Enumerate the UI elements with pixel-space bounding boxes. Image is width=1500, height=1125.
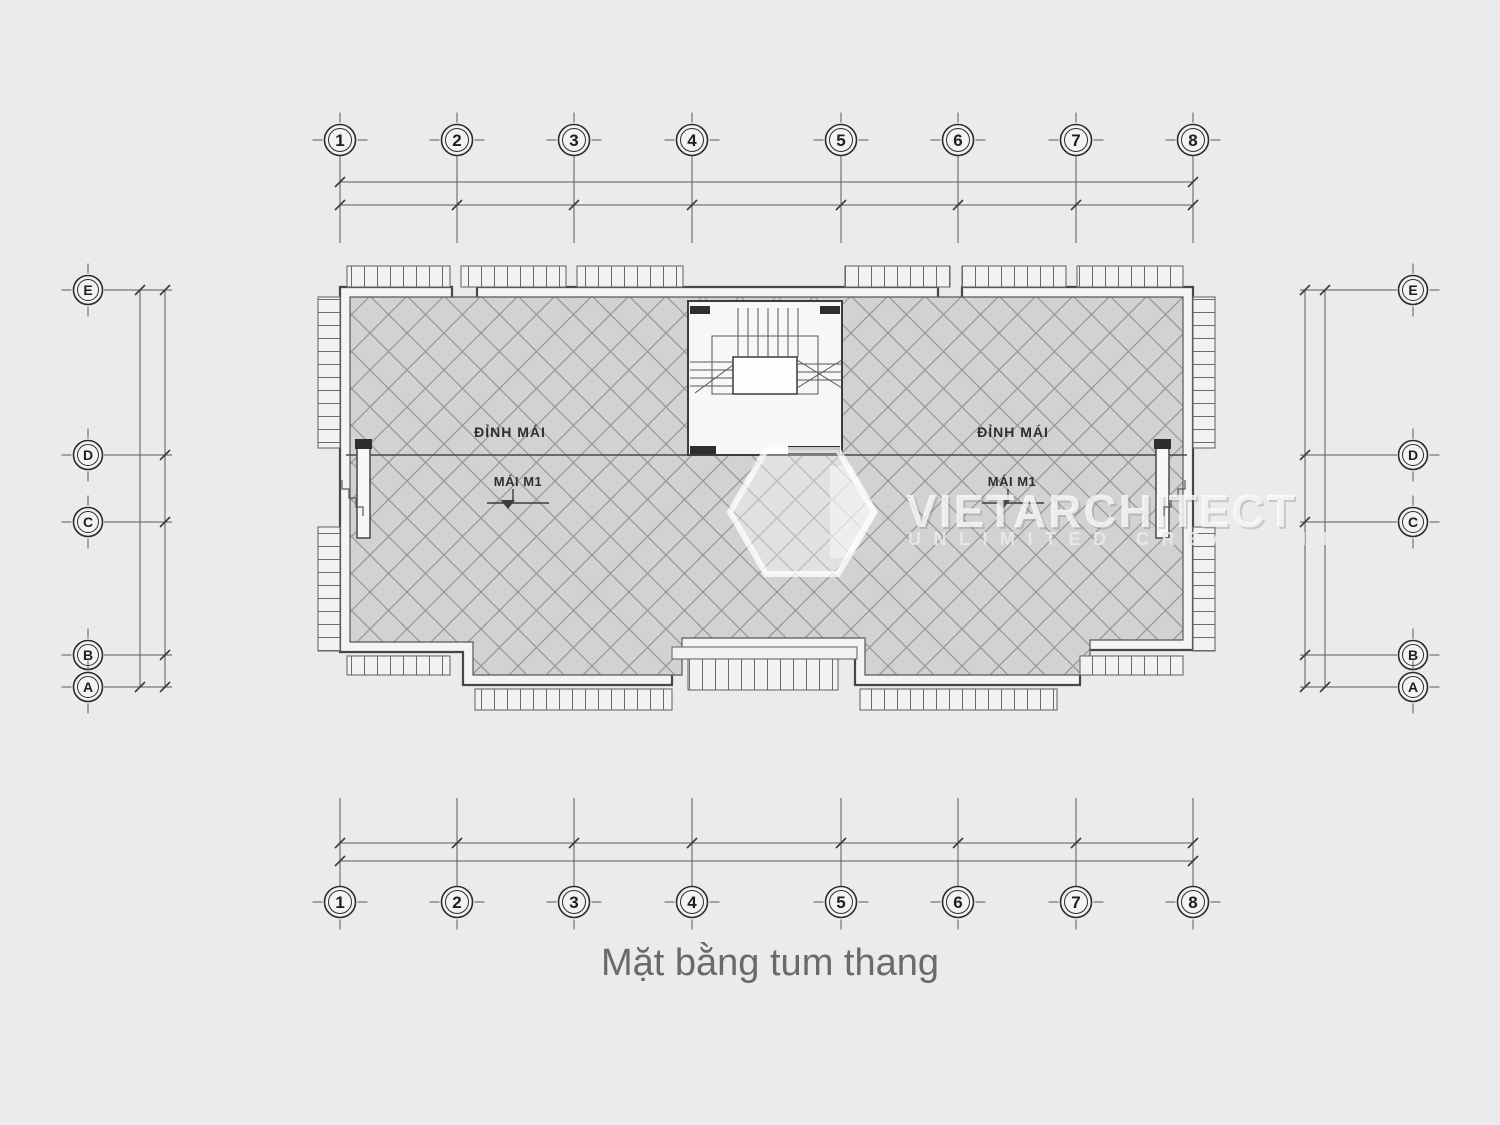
stair-landing (733, 357, 797, 394)
grid-bubble-bottom-3: 3 (547, 875, 602, 930)
grid-bubble-right-0: E (1387, 264, 1440, 317)
grid-bubble-bottom-2-label: 2 (452, 893, 461, 912)
label-roof-right: MÁI M1 (988, 474, 1037, 489)
drawing-title: Mặt bằng tum thang (601, 942, 939, 985)
grid-bubble-top-8: 8 (1166, 113, 1221, 168)
grid-bubble-bottom-5: 5 (814, 875, 869, 930)
grid-bubble-top-4-label: 4 (687, 131, 697, 150)
grid-bubble-top-7-label: 7 (1071, 131, 1080, 150)
grid-bubble-bottom-2: 2 (430, 875, 485, 930)
label-roof-left: MÁI M1 (494, 474, 543, 489)
grid-bubble-top-5: 5 (814, 113, 869, 168)
grid-bubble-right-2: C (1387, 496, 1440, 549)
grid-bubble-right-1: D (1387, 429, 1440, 482)
grid-bubble-left-4-label: A (83, 679, 93, 695)
grid-bubble-right-1-label: D (1408, 447, 1418, 463)
grid-bubble-left-1-label: D (83, 447, 93, 463)
grid-bubble-left-4: A (62, 661, 115, 714)
grid-bubble-top-3: 3 (547, 113, 602, 168)
label-ridge-right: ĐỈNH MÁI (977, 424, 1049, 440)
grid-bubble-bottom-4: 4 (665, 875, 720, 930)
stair-core (688, 301, 842, 455)
grid-bubble-bottom-4-label: 4 (687, 893, 697, 912)
grid-bubble-right-0-label: E (1408, 282, 1417, 298)
grid-bubble-bottom-6-label: 6 (953, 893, 962, 912)
grid-bubble-left-2-label: C (83, 514, 93, 530)
grid-bubble-top-1: 1 (313, 113, 368, 168)
grid-bubble-top-2-label: 2 (452, 131, 461, 150)
grid-bubble-top-4: 4 (665, 113, 720, 168)
grid-bubble-top-5-label: 5 (836, 131, 845, 150)
grid-bubble-bottom-3-label: 3 (569, 893, 578, 912)
grid-bubble-bottom-1-label: 1 (335, 893, 344, 912)
grid-bubble-left-0: E (62, 264, 115, 317)
grid-bubble-right-4-label: A (1408, 679, 1418, 695)
grid-bubble-top-6-label: 6 (953, 131, 962, 150)
grid-bubble-top-8-label: 8 (1188, 131, 1197, 150)
grid-bubble-top-2: 2 (430, 113, 485, 168)
grid-bubble-left-2: C (62, 496, 115, 549)
watermark-tagline: UNLIMITED CREATIVITY (908, 529, 1367, 549)
grid-bubble-bottom-5-label: 5 (836, 893, 845, 912)
grid-bubble-left-0-label: E (83, 282, 92, 298)
grid-bubble-right-2-label: C (1408, 514, 1418, 530)
grid-bubble-bottom-1: 1 (313, 875, 368, 930)
grid-bubble-bottom-6: 6 (931, 875, 986, 930)
grid-bubble-top-6: 6 (931, 113, 986, 168)
grid-bubble-left-1: D (62, 429, 115, 482)
grid-bubble-top-3-label: 3 (569, 131, 578, 150)
grid-bubble-bottom-7: 7 (1049, 875, 1104, 930)
grid-bubble-right-4: A (1387, 661, 1440, 714)
grid-bubble-bottom-8-label: 8 (1188, 893, 1197, 912)
grid-bubble-bottom-7-label: 7 (1071, 893, 1080, 912)
grid-bubble-top-7: 7 (1049, 113, 1104, 168)
label-ridge-left: ĐỈNH MÁI (474, 424, 546, 440)
grid-bubble-top-1-label: 1 (335, 131, 344, 150)
page: { "title": { "text": "Mặt bằng tum thang… (0, 0, 1500, 1125)
grid-bubble-bottom-8: 8 (1166, 875, 1221, 930)
